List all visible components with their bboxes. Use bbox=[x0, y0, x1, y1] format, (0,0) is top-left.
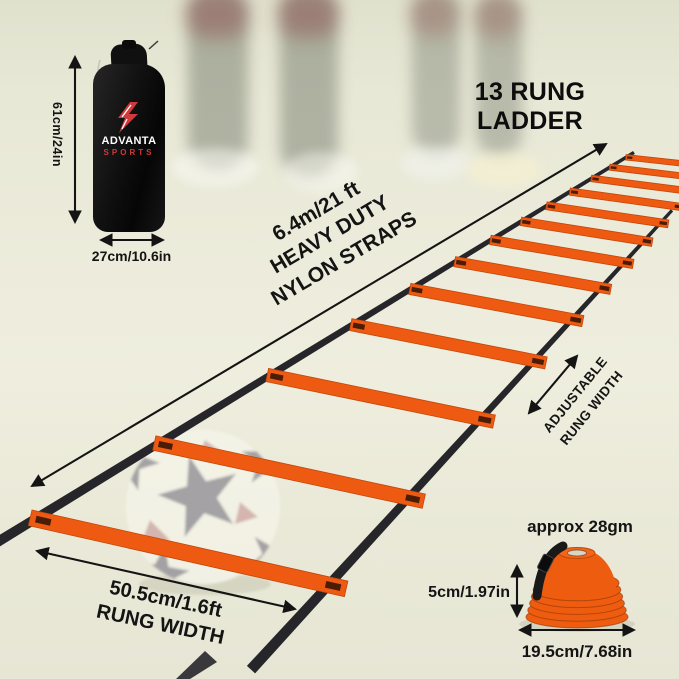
ladder-rung bbox=[266, 368, 496, 428]
product-infographic: ADVANTA SPORTS 13 RUNG LADDER 6.4m/21 ft… bbox=[0, 0, 679, 679]
bag-brand-name: ADVANTA bbox=[91, 135, 167, 147]
bag-height-label: 61cm/24in bbox=[50, 102, 64, 198]
cone-hole bbox=[568, 550, 587, 556]
bag-tie bbox=[122, 40, 136, 49]
cone-height-label: 5cm/1.97in bbox=[414, 584, 510, 602]
cone-diameter-label: 19.5cm/7.68in bbox=[514, 642, 640, 662]
cone-stack bbox=[519, 546, 635, 632]
ladder-rung bbox=[409, 283, 584, 326]
ladder-rung bbox=[350, 319, 548, 369]
bag-brand-sub: SPORTS bbox=[91, 148, 167, 157]
lightning-bolt-icon bbox=[115, 102, 141, 134]
cone-weight-label: approx 28gm bbox=[518, 517, 642, 537]
ladder-rung bbox=[454, 257, 612, 295]
strap-end bbox=[176, 651, 217, 679]
carry-bag: ADVANTA SPORTS bbox=[91, 44, 167, 244]
bag-width-label: 27cm/10.6in bbox=[84, 248, 179, 264]
page-title: 13 RUNG LADDER bbox=[420, 78, 640, 136]
